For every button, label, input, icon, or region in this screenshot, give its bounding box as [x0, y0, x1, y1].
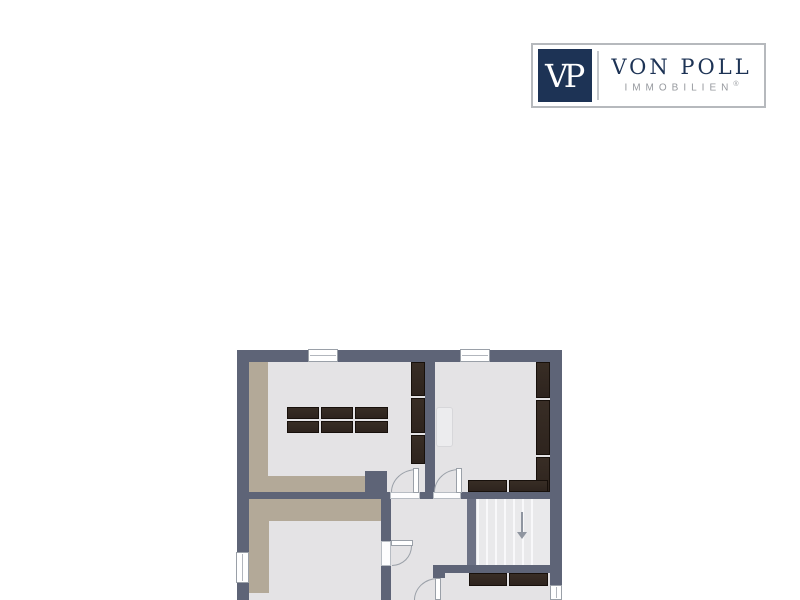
door-jamb-hallway	[381, 541, 391, 566]
wall-divider-upper-rooms	[425, 362, 435, 492]
wall-top	[237, 350, 562, 362]
cabinet	[536, 362, 550, 398]
wall-middle-stub	[420, 492, 433, 499]
conference-table	[287, 407, 319, 419]
wall-hall-divider-upper	[381, 499, 391, 541]
conference-table	[355, 421, 388, 433]
door-leaf-upper-left-room	[413, 468, 419, 493]
door-leaf-upper-right-room	[456, 468, 462, 493]
cabinet	[509, 573, 548, 586]
stair-direction-arrow-line	[521, 512, 523, 534]
furniture-pad	[436, 407, 453, 447]
conference-table	[321, 407, 353, 419]
room-lower-left-accent-floor-left	[249, 499, 269, 593]
wall-middle-right	[461, 492, 562, 499]
wall-right	[550, 350, 562, 600]
cabinet	[469, 573, 507, 586]
door-sill-upper-left-room	[390, 492, 420, 499]
room-upper-left-accent-floor-bottom	[249, 476, 365, 492]
window-left-lower	[236, 552, 249, 583]
wall-pier	[365, 471, 387, 493]
cabinet	[536, 400, 550, 455]
room-upper-left-accent-floor-left	[249, 362, 268, 492]
window-top-left	[308, 349, 338, 362]
door-leaf-lower-left-room	[391, 540, 413, 546]
stair-direction-arrow-head	[517, 532, 527, 539]
door-leaf-lower-right-room	[435, 578, 441, 600]
conference-table	[321, 421, 353, 433]
cabinet	[411, 398, 425, 433]
floor-plan	[0, 0, 800, 600]
window-right-lower	[550, 585, 562, 600]
cabinet	[411, 435, 425, 464]
wall-lower-right-room-top	[433, 565, 562, 573]
conference-table	[355, 407, 388, 419]
wall-lower-right-room-corner	[433, 565, 445, 578]
wall-stair-side	[467, 499, 476, 566]
door-sill-upper-right-room	[433, 492, 461, 499]
wall-middle-left	[237, 492, 390, 499]
cabinet	[509, 480, 548, 492]
cabinet	[468, 480, 507, 492]
window-top-right	[460, 349, 490, 362]
cabinet	[411, 362, 425, 396]
wall-hall-divider-lower	[381, 566, 391, 600]
conference-table	[287, 421, 319, 433]
staircase	[476, 499, 550, 565]
page: VP VON POLL IMMOBILIEN®	[0, 0, 800, 600]
